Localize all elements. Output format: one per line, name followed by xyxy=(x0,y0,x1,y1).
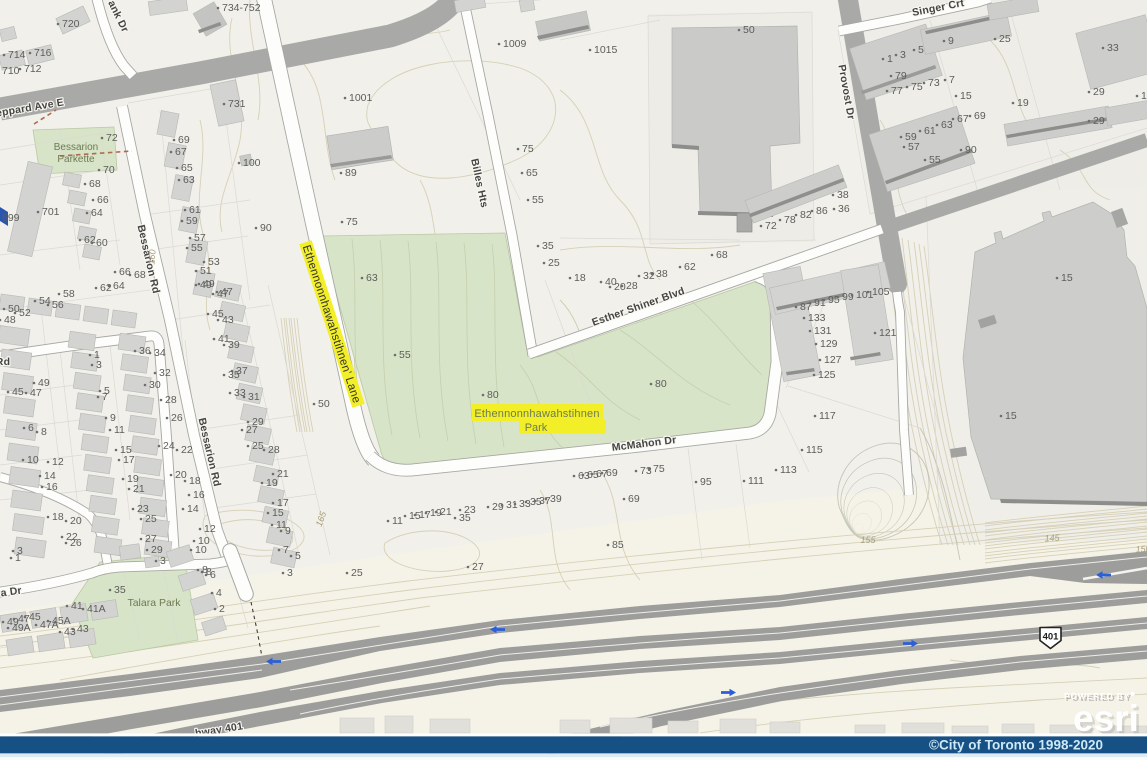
svg-text:25: 25 xyxy=(999,33,1011,45)
svg-text:15: 15 xyxy=(1061,272,1073,284)
svg-text:43: 43 xyxy=(77,623,89,635)
svg-text:57: 57 xyxy=(908,141,920,153)
svg-text:49A: 49A xyxy=(12,622,31,634)
svg-text:69: 69 xyxy=(606,467,618,479)
svg-text:62: 62 xyxy=(100,282,112,294)
svg-text:89: 89 xyxy=(345,167,357,179)
svg-text:7: 7 xyxy=(102,391,108,403)
svg-text:21: 21 xyxy=(277,468,289,480)
svg-text:99: 99 xyxy=(842,291,854,303)
svg-text:127: 127 xyxy=(824,354,842,366)
svg-text:19: 19 xyxy=(1017,97,1029,109)
svg-text:80: 80 xyxy=(655,378,667,390)
svg-text:28: 28 xyxy=(268,444,280,456)
svg-text:41A: 41A xyxy=(87,603,106,615)
svg-text:63: 63 xyxy=(366,272,378,284)
svg-text:714: 714 xyxy=(8,49,26,61)
svg-text:29: 29 xyxy=(1093,115,1105,127)
svg-text:39: 39 xyxy=(550,493,562,505)
svg-text:60: 60 xyxy=(96,237,108,249)
svg-text:73: 73 xyxy=(640,465,652,477)
svg-text:734-752: 734-752 xyxy=(222,2,261,14)
svg-text:78: 78 xyxy=(784,214,796,226)
svg-text:63: 63 xyxy=(183,174,195,186)
svg-text:35: 35 xyxy=(459,512,471,524)
svg-text:43: 43 xyxy=(222,314,234,326)
svg-text:129: 129 xyxy=(820,338,838,350)
svg-text:68: 68 xyxy=(134,269,146,281)
svg-text:64: 64 xyxy=(91,207,103,219)
svg-text:69: 69 xyxy=(178,134,190,146)
svg-text:72: 72 xyxy=(106,132,118,144)
svg-text:6: 6 xyxy=(210,569,216,581)
svg-text:3: 3 xyxy=(160,555,166,567)
svg-text:35: 35 xyxy=(114,584,126,596)
svg-text:32: 32 xyxy=(159,367,171,379)
svg-text:5: 5 xyxy=(918,44,924,56)
svg-text:66: 66 xyxy=(97,194,109,206)
svg-text:6: 6 xyxy=(28,422,34,434)
svg-text:38: 38 xyxy=(837,189,849,201)
svg-text:70: 70 xyxy=(103,164,115,176)
svg-text:Parkette: Parkette xyxy=(57,154,95,165)
svg-text:720: 720 xyxy=(62,18,80,30)
svg-text:11: 11 xyxy=(114,424,125,436)
svg-text:701: 701 xyxy=(42,206,60,218)
svg-text:15: 15 xyxy=(272,507,284,519)
svg-text:5: 5 xyxy=(295,550,301,562)
svg-text:56: 56 xyxy=(52,299,64,311)
svg-text:14: 14 xyxy=(187,503,199,515)
svg-text:35: 35 xyxy=(228,369,240,381)
svg-text:25: 25 xyxy=(351,567,363,579)
svg-text:18: 18 xyxy=(52,511,64,523)
svg-text:30: 30 xyxy=(149,379,161,391)
svg-text:9: 9 xyxy=(948,35,954,47)
svg-text:Park: Park xyxy=(525,422,548,434)
svg-text:121: 121 xyxy=(879,327,897,339)
svg-text:12: 12 xyxy=(204,523,216,535)
svg-text:41: 41 xyxy=(71,600,83,612)
svg-text:39: 39 xyxy=(228,339,240,351)
svg-text:69: 69 xyxy=(974,110,986,122)
svg-text:Bessarion: Bessarion xyxy=(54,142,98,153)
svg-text:75: 75 xyxy=(653,463,665,475)
svg-text:15: 15 xyxy=(1005,410,1017,422)
svg-text:710: 710 xyxy=(2,65,20,77)
svg-text:esri: esri xyxy=(1073,698,1139,739)
svg-text:75: 75 xyxy=(911,81,923,93)
svg-text:49: 49 xyxy=(203,278,215,290)
svg-text:131: 131 xyxy=(814,325,832,337)
svg-text:9: 9 xyxy=(285,525,291,537)
svg-text:64: 64 xyxy=(113,280,125,292)
svg-text:28: 28 xyxy=(626,280,638,292)
svg-text:699: 699 xyxy=(2,212,20,224)
svg-text:24: 24 xyxy=(163,440,175,452)
svg-text:52: 52 xyxy=(19,307,31,319)
svg-text:63: 63 xyxy=(941,119,953,131)
svg-text:55: 55 xyxy=(532,194,544,206)
svg-text:125: 125 xyxy=(818,369,836,381)
svg-text:29: 29 xyxy=(1093,86,1105,98)
svg-text:34: 34 xyxy=(154,347,166,359)
svg-text:12: 12 xyxy=(52,456,64,468)
svg-text:712: 712 xyxy=(24,63,42,75)
svg-text:115: 115 xyxy=(806,444,823,456)
svg-text:133: 133 xyxy=(808,312,826,324)
svg-text:1001: 1001 xyxy=(349,92,373,104)
svg-text:54: 54 xyxy=(39,295,51,307)
svg-text:7: 7 xyxy=(283,544,289,556)
svg-text:31: 31 xyxy=(506,499,518,511)
svg-text:47: 47 xyxy=(30,387,42,399)
svg-text:11: 11 xyxy=(392,515,403,527)
svg-text:86: 86 xyxy=(816,205,828,217)
svg-text:36: 36 xyxy=(139,345,151,357)
svg-text:65: 65 xyxy=(181,162,193,174)
svg-text:61: 61 xyxy=(924,125,936,137)
svg-text:55: 55 xyxy=(191,242,203,254)
svg-text:75: 75 xyxy=(522,143,534,155)
svg-text:117: 117 xyxy=(819,410,836,422)
svg-text:Rd: Rd xyxy=(0,356,10,368)
svg-text:67: 67 xyxy=(175,146,187,158)
svg-text:3: 3 xyxy=(287,567,293,579)
svg-text:3: 3 xyxy=(96,359,102,371)
svg-text:33: 33 xyxy=(1107,42,1119,54)
svg-text:26: 26 xyxy=(70,537,82,549)
svg-text:67: 67 xyxy=(957,113,969,125)
svg-text:25: 25 xyxy=(548,257,560,269)
svg-text:45: 45 xyxy=(12,386,24,398)
svg-text:Talara Park: Talara Park xyxy=(127,597,181,609)
svg-text:1015: 1015 xyxy=(594,44,618,56)
svg-text:90: 90 xyxy=(260,222,272,234)
svg-text:20: 20 xyxy=(614,281,626,293)
svg-text:716: 716 xyxy=(34,47,52,59)
svg-text:25: 25 xyxy=(145,513,157,525)
svg-text:10: 10 xyxy=(195,544,207,556)
svg-text:77: 77 xyxy=(891,85,903,97)
svg-text:90: 90 xyxy=(965,144,977,156)
svg-text:80: 80 xyxy=(487,389,499,401)
svg-text:66: 66 xyxy=(119,266,131,278)
svg-text:25: 25 xyxy=(252,440,264,452)
svg-text:55: 55 xyxy=(399,349,411,361)
svg-text:20: 20 xyxy=(70,515,82,527)
svg-text:55: 55 xyxy=(929,154,941,166)
svg-text:19: 19 xyxy=(266,477,278,489)
svg-text:79: 79 xyxy=(895,70,907,82)
svg-text:401: 401 xyxy=(1043,632,1060,643)
svg-text:1: 1 xyxy=(15,552,21,564)
svg-text:72: 72 xyxy=(765,220,777,232)
svg-text:18: 18 xyxy=(574,272,586,284)
svg-text:105: 105 xyxy=(872,286,890,298)
svg-text:113: 113 xyxy=(780,464,797,476)
svg-text:15: 15 xyxy=(960,90,972,102)
svg-text:73: 73 xyxy=(928,77,940,89)
svg-text:1009: 1009 xyxy=(503,38,527,50)
svg-text:47: 47 xyxy=(221,286,233,298)
svg-text:2: 2 xyxy=(219,603,225,615)
svg-text:29: 29 xyxy=(492,501,504,513)
svg-text:145: 145 xyxy=(1044,532,1061,543)
svg-text:15: 15 xyxy=(1141,90,1147,102)
svg-text:48: 48 xyxy=(4,314,16,326)
svg-text:50: 50 xyxy=(743,24,755,36)
svg-text:22: 22 xyxy=(181,444,193,456)
svg-text:62: 62 xyxy=(84,234,96,246)
svg-text:68: 68 xyxy=(89,178,101,190)
svg-text:16: 16 xyxy=(193,489,205,501)
svg-text:160: 160 xyxy=(146,249,157,265)
svg-text:8: 8 xyxy=(41,426,47,438)
svg-text:731: 731 xyxy=(228,98,246,110)
svg-text:3: 3 xyxy=(900,49,906,61)
svg-text:9: 9 xyxy=(110,412,116,424)
svg-text:27: 27 xyxy=(246,424,258,436)
svg-text:16: 16 xyxy=(46,481,58,493)
svg-text:43: 43 xyxy=(64,626,76,638)
svg-text:155: 155 xyxy=(860,535,876,545)
svg-text:58: 58 xyxy=(63,288,75,300)
svg-text:36: 36 xyxy=(838,203,850,215)
svg-text:21: 21 xyxy=(133,483,145,495)
svg-text:32: 32 xyxy=(643,270,655,282)
svg-text:51: 51 xyxy=(200,265,212,277)
svg-text:75: 75 xyxy=(346,216,358,228)
svg-text:95: 95 xyxy=(700,476,712,488)
svg-text:65: 65 xyxy=(526,167,538,179)
svg-text:27: 27 xyxy=(472,561,484,573)
svg-text:20: 20 xyxy=(175,469,187,481)
svg-text:26: 26 xyxy=(171,412,183,424)
svg-text:7: 7 xyxy=(949,74,955,86)
svg-text:82: 82 xyxy=(800,209,812,221)
svg-text:35: 35 xyxy=(542,240,554,252)
svg-text:68: 68 xyxy=(716,249,728,261)
svg-text:59: 59 xyxy=(186,215,198,227)
svg-text:28: 28 xyxy=(165,394,177,406)
svg-text:150: 150 xyxy=(1135,543,1147,554)
svg-text:85: 85 xyxy=(612,539,624,551)
svg-text:69: 69 xyxy=(628,493,640,505)
svg-text:©City of Toronto 1998-2020: ©City of Toronto 1998-2020 xyxy=(929,738,1103,753)
svg-text:50: 50 xyxy=(318,398,330,410)
svg-text:1: 1 xyxy=(887,53,893,65)
svg-text:62: 62 xyxy=(684,261,696,273)
svg-text:10: 10 xyxy=(27,454,39,466)
svg-text:4: 4 xyxy=(216,587,222,599)
svg-text:21: 21 xyxy=(440,506,452,518)
svg-text:17: 17 xyxy=(123,454,135,466)
svg-text:100: 100 xyxy=(243,157,261,169)
svg-text:31: 31 xyxy=(248,391,260,403)
svg-text:18: 18 xyxy=(189,475,201,487)
svg-text:Ethennonnhawahstihnen: Ethennonnhawahstihnen xyxy=(474,408,599,420)
svg-text:38: 38 xyxy=(656,268,668,280)
svg-text:111: 111 xyxy=(748,475,764,487)
